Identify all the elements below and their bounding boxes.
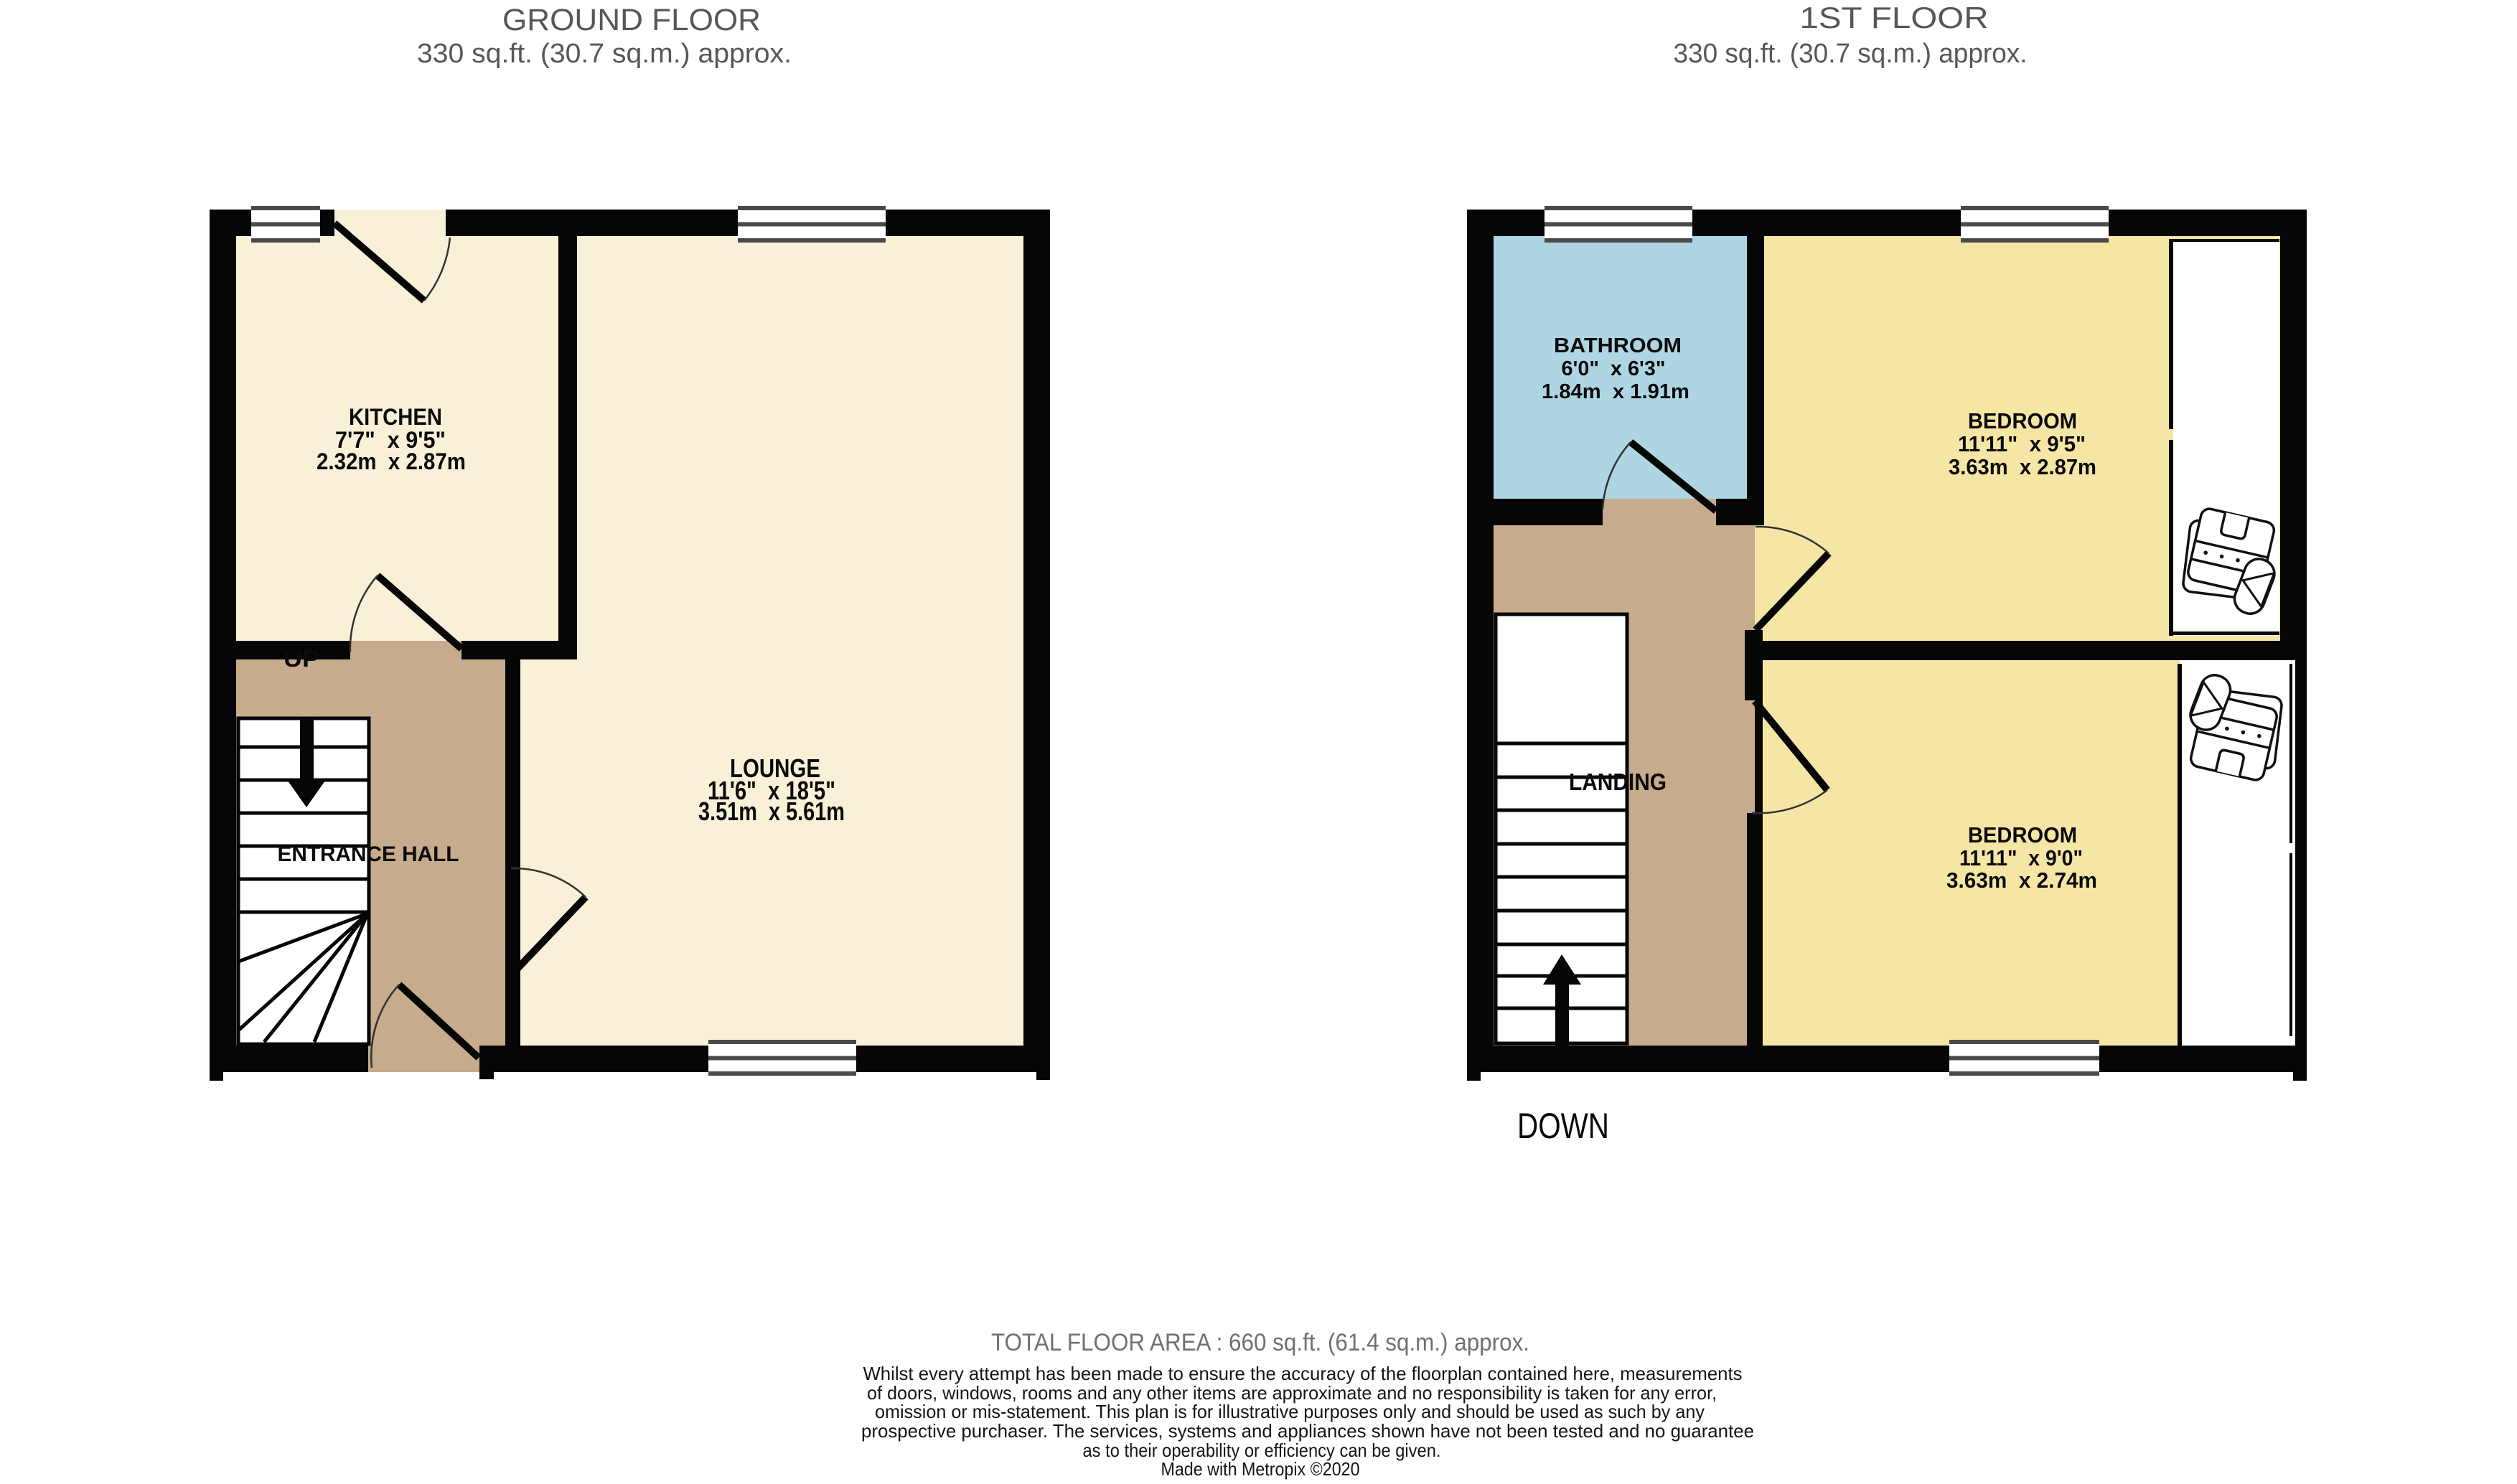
svg-text:prospective purchaser. The ser: prospective purchaser. The services, sys… — [861, 1420, 1754, 1442]
svg-text:1ST FLOOR: 1ST FLOOR — [1800, 1, 1989, 34]
svg-text:Made with Metropix ©2020: Made with Metropix ©2020 — [1161, 1458, 1360, 1480]
svg-text:GROUND FLOOR: GROUND FLOOR — [502, 3, 761, 37]
svg-text:3.51m x 5.61m: 3.51m x 5.61m — [698, 797, 845, 826]
svg-text:6'0" x 6'3": 6'0" x 6'3" — [1562, 357, 1666, 380]
svg-text:3.63m x 2.74m: 3.63m x 2.74m — [1946, 868, 2097, 893]
svg-text:330 sq.ft. (30.7 sq.m.) approx: 330 sq.ft. (30.7 sq.m.) approx. — [417, 39, 792, 69]
svg-text:omission or mis-statement. Thi: omission or mis-statement. This plan is … — [875, 1401, 1705, 1422]
svg-text:ENTRANCE HALL: ENTRANCE HALL — [278, 842, 459, 866]
svg-text:DOWN: DOWN — [1517, 1106, 1609, 1146]
svg-text:11'11" x 9'5": 11'11" x 9'5" — [1958, 431, 2086, 456]
svg-text:BEDROOM: BEDROOM — [1968, 822, 2077, 847]
svg-text:BEDROOM: BEDROOM — [1968, 408, 2077, 433]
svg-text:TOTAL FLOOR AREA : 660 sq.ft.: TOTAL FLOOR AREA : 660 sq.ft. (61.4 sq.m… — [991, 1329, 1529, 1356]
svg-text:UP: UP — [283, 646, 319, 672]
svg-text:11'11" x 9'0": 11'11" x 9'0" — [1959, 845, 2083, 870]
svg-text:KITCHEN: KITCHEN — [349, 404, 442, 430]
svg-text:330 sq.ft. (30.7 sq.m.) approx: 330 sq.ft. (30.7 sq.m.) approx. — [1674, 39, 2028, 69]
svg-text:Whilst every attempt has been: Whilst every attempt has been made to en… — [863, 1363, 1743, 1384]
svg-text:3.63m x 2.87m: 3.63m x 2.87m — [1949, 454, 2096, 479]
svg-text:1.84m x 1.91m: 1.84m x 1.91m — [1542, 380, 1689, 403]
svg-text:2.32m x 2.87m: 2.32m x 2.87m — [317, 449, 466, 474]
svg-text:BATHROOM: BATHROOM — [1554, 334, 1682, 357]
svg-text:LANDING: LANDING — [1569, 769, 1667, 795]
